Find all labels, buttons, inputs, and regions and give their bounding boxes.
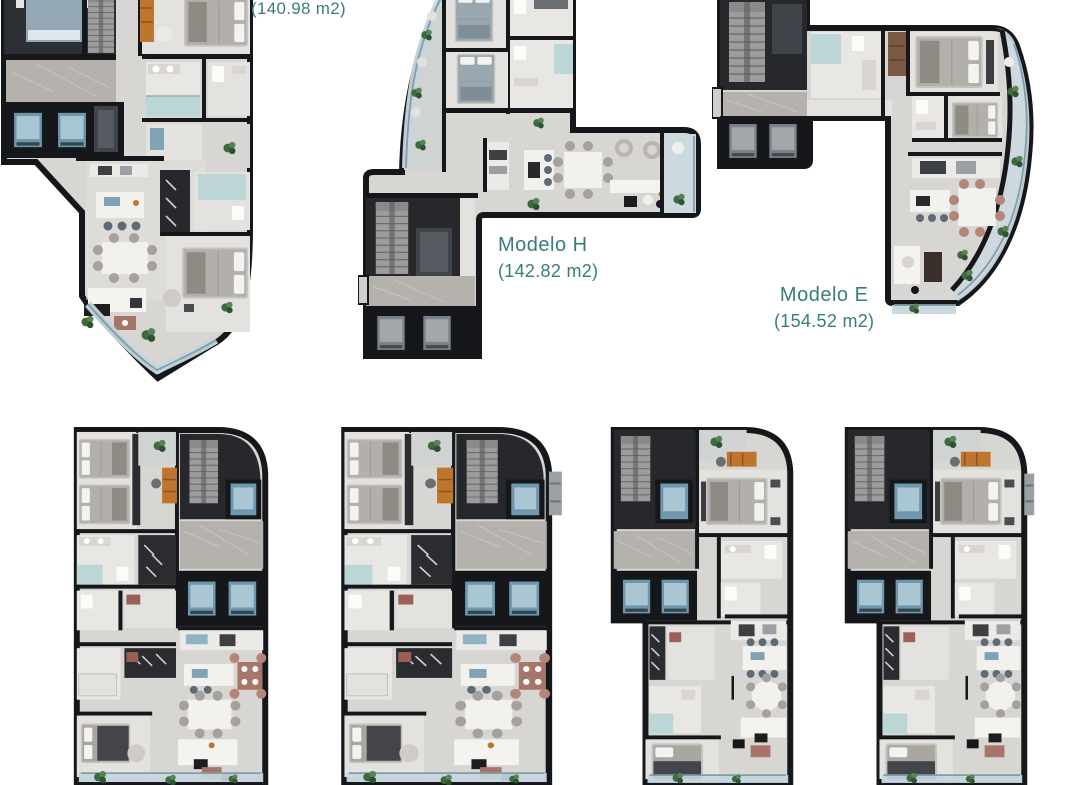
bedroom-2 (948, 96, 1002, 142)
shower-room (194, 172, 250, 230)
service-elevator-icon (765, 120, 801, 162)
bathroom-1 (146, 62, 200, 116)
model-name: Modelo H (498, 232, 598, 258)
area-label: (142.82 m2) (498, 258, 598, 284)
floor-plan-modelo-e (712, 0, 1038, 336)
bedroom-1 (140, 0, 250, 54)
bathroom-2 (208, 62, 250, 116)
area-label: (140.98 m2) (251, 0, 346, 22)
ac-units (549, 472, 562, 516)
plant-icon (81, 316, 93, 328)
floor-plan-bottom-1 (70, 426, 275, 785)
kitchen-counter (912, 158, 1000, 178)
elevator-icon (10, 109, 46, 152)
stair-core (358, 193, 478, 358)
service-elevator-icon (419, 312, 455, 354)
stairs-icon (88, 0, 114, 53)
floor-plan-modelo-h (358, 0, 706, 378)
closet (160, 170, 190, 232)
bathroom-1 (510, 0, 573, 40)
balcony-right (660, 132, 696, 215)
ac-units (1024, 474, 1034, 516)
label-modelo-e: Modelo E (154.52 m2) (774, 282, 874, 334)
toilet-room (146, 124, 202, 160)
bedroom-2 (446, 52, 508, 108)
closet (888, 32, 906, 76)
bathroom-2 (912, 96, 944, 138)
label-modelo-h: Modelo H (142.82 m2) (498, 232, 598, 284)
stairs-icon (729, 2, 765, 82)
hallway (206, 124, 250, 168)
floor-plan-top-left (0, 0, 258, 392)
stairs-icon (376, 202, 408, 274)
kitchen-island (524, 150, 554, 190)
service-elevator-icon (725, 120, 761, 162)
label-top-left-plan: (140.98 m2) (251, 0, 346, 22)
floor-plan-sheet: (140.98 m2) Modelo H (142.82 m2) Modelo … (0, 0, 1080, 785)
bathroom-2 (510, 40, 573, 108)
bedroom-1 (910, 32, 998, 92)
kitchen-counter (90, 164, 148, 177)
bedroom-blue (16, 0, 92, 42)
elevator-lobby (6, 60, 116, 102)
floor-plan-bottom-3 (605, 426, 801, 785)
elevator-icon (54, 109, 90, 152)
model-name: Modelo E (774, 282, 874, 308)
floor-plan-bottom-2 (338, 426, 564, 785)
service-elevator-icon (373, 312, 409, 354)
floor-plan-bottom-4 (838, 426, 1036, 785)
kitchen (483, 138, 509, 192)
curved-terrace (404, 0, 444, 170)
area-label: (154.52 m2) (774, 308, 874, 334)
bedroom-main (163, 236, 250, 332)
bedroom-1 (446, 0, 506, 48)
balcony-bottom (892, 303, 956, 314)
stair-core (712, 0, 807, 164)
